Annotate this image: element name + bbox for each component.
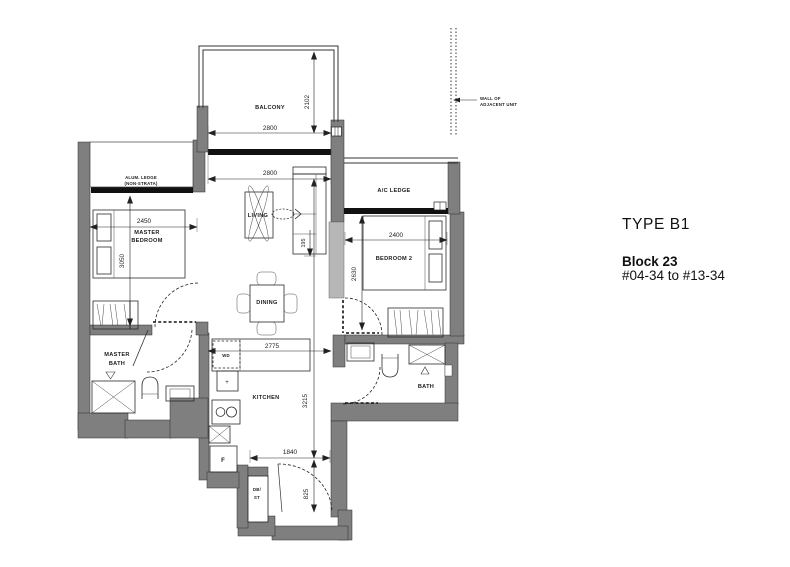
kitchen-sink-icon: + — [217, 371, 238, 391]
room-label-balcony: BALCONY — [255, 105, 285, 111]
room-label-master-bedroom-1: MASTER — [134, 230, 159, 236]
dim-bedroom2-width: 2400 — [389, 232, 404, 239]
room-label-ac-ledge: A/C LEDGE — [377, 188, 410, 194]
room-label-dining: DINING — [256, 300, 277, 306]
adjacent-wall-note-2: ADJACENT UNIT — [480, 102, 517, 107]
dim-master-bedroom-length: 3050 — [119, 253, 126, 268]
master-bedroom-door-arc — [155, 283, 199, 327]
floorplan-svg: ALUM. LEDGE (NON-STRATA) WALL OF ADJACEN… — [0, 0, 790, 567]
entry-door-arc — [278, 464, 332, 512]
dim-kitchen-length: 3215 — [302, 393, 309, 408]
kitchen-counter: WD — [212, 339, 310, 371]
room-label-kitchen: KITCHEN — [253, 395, 280, 401]
alum-ledge-label-1: ALUM. LEDGE — [125, 175, 157, 180]
db-st-closet: DB/ ST — [248, 476, 268, 522]
bath-door-arc — [343, 367, 380, 404]
sink-marker: + — [225, 380, 229, 386]
dim-master-bedroom-width: 2450 — [137, 218, 152, 225]
bedroom2-window — [344, 208, 448, 214]
living-balcony-window — [208, 149, 331, 155]
dimensions-layer: 2800 2102 2800 2450 3050 2400 2630 2775 … — [90, 52, 447, 512]
bath-toilet-icon — [382, 354, 398, 377]
type-title: TYPE B1 — [622, 216, 690, 233]
alum-ledge-label-2: (NON-STRATA) — [124, 181, 157, 186]
bath-shower-icon — [409, 345, 445, 374]
kitchen-service-box-icon — [209, 426, 230, 443]
fridge-label: F — [221, 458, 225, 464]
room-label-bedroom2: BEDROOM 2 — [376, 256, 413, 262]
bedroom2-door-arc — [345, 298, 382, 335]
dim-kitchen-dining-width: 2775 — [265, 343, 280, 350]
shower-marker-icon — [421, 367, 429, 374]
dim-sofa-ledge: 195 — [301, 239, 307, 248]
dim-bedroom2-length: 2630 — [351, 266, 358, 281]
dim-entry-recess: 825 — [303, 488, 310, 499]
master-bedroom-window — [91, 187, 193, 193]
title-block: TYPE B1 Block 23 #04-34 to #13-34 — [622, 216, 725, 283]
dim-balcony-depth: 2102 — [304, 94, 311, 109]
dim-balcony-width: 2800 — [263, 125, 278, 132]
master-bath-toilet-icon — [142, 377, 158, 399]
unit-range: #04-34 to #13-34 — [622, 268, 725, 283]
master-bath-shower-icon — [92, 372, 135, 413]
ac-ledge-edge — [344, 158, 458, 163]
ac-ledge-unit-icon — [434, 202, 446, 210]
bath-sink-icon — [347, 343, 374, 361]
shower-marker-icon — [106, 372, 115, 379]
room-label-bath: BATH — [418, 384, 434, 390]
light-wall-segment — [329, 222, 344, 298]
room-label-master-bedroom-2: BEDROOM — [131, 238, 162, 244]
dim-living-width: 2800 — [263, 170, 278, 177]
master-bath-door-arc — [147, 330, 192, 372]
room-label-living: LIVING — [248, 213, 268, 219]
entry-door-leaf — [278, 464, 282, 512]
block-title: Block 23 — [622, 254, 678, 269]
bedroom2-bed-icon — [363, 216, 446, 290]
balcony-service-box-icon — [332, 127, 342, 136]
db-st-label-1: DB/ — [253, 487, 262, 492]
adjacent-wall-note-1: WALL OF — [480, 96, 501, 101]
hob-icon — [212, 400, 240, 424]
floorplan-page: ALUM. LEDGE (NON-STRATA) WALL OF ADJACEN… — [0, 0, 790, 567]
bedroom2-wardrobe-icon — [388, 308, 443, 337]
db-st-label-2: ST — [254, 495, 260, 500]
room-label-master-bath-2: BATH — [109, 361, 125, 367]
fridge-icon: F — [210, 446, 237, 472]
master-bath-door-leaf — [133, 330, 148, 366]
sofa-icon — [293, 167, 326, 254]
adjacent-unit-wall: WALL OF ADJACENT UNIT — [451, 28, 517, 136]
dim-entry-width: 1840 — [283, 449, 298, 456]
room-label-master-bath-1: MASTER — [104, 352, 129, 358]
bath-wall-niche — [445, 365, 452, 376]
washer-dryer-label: WD — [222, 353, 230, 358]
alum-ledge: ALUM. LEDGE (NON-STRATA) — [90, 142, 193, 187]
